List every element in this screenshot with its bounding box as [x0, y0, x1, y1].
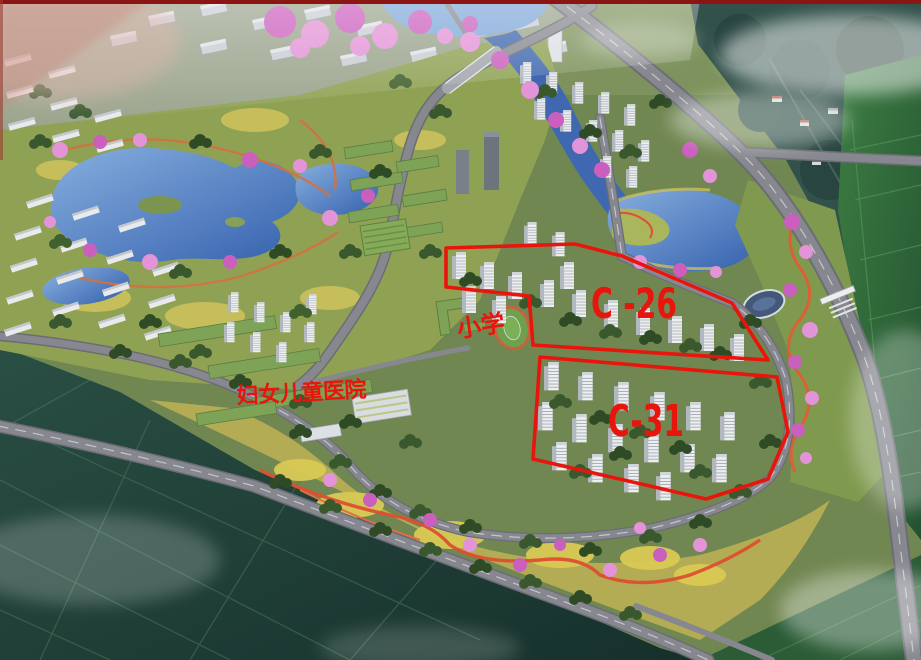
- parcel-c26-label: C -26: [591, 279, 677, 328]
- sports-hall: [360, 219, 410, 256]
- parcel-c31-label: C-31: [608, 396, 684, 447]
- rendering-canvas: C -26 C-31 小学 妇女儿童医院: [0, 0, 921, 660]
- office-tower: [484, 132, 499, 190]
- slide-border-top: [0, 0, 921, 4]
- masterplan-aerial-rendering: C -26 C-31 小学 妇女儿童医院: [0, 0, 921, 660]
